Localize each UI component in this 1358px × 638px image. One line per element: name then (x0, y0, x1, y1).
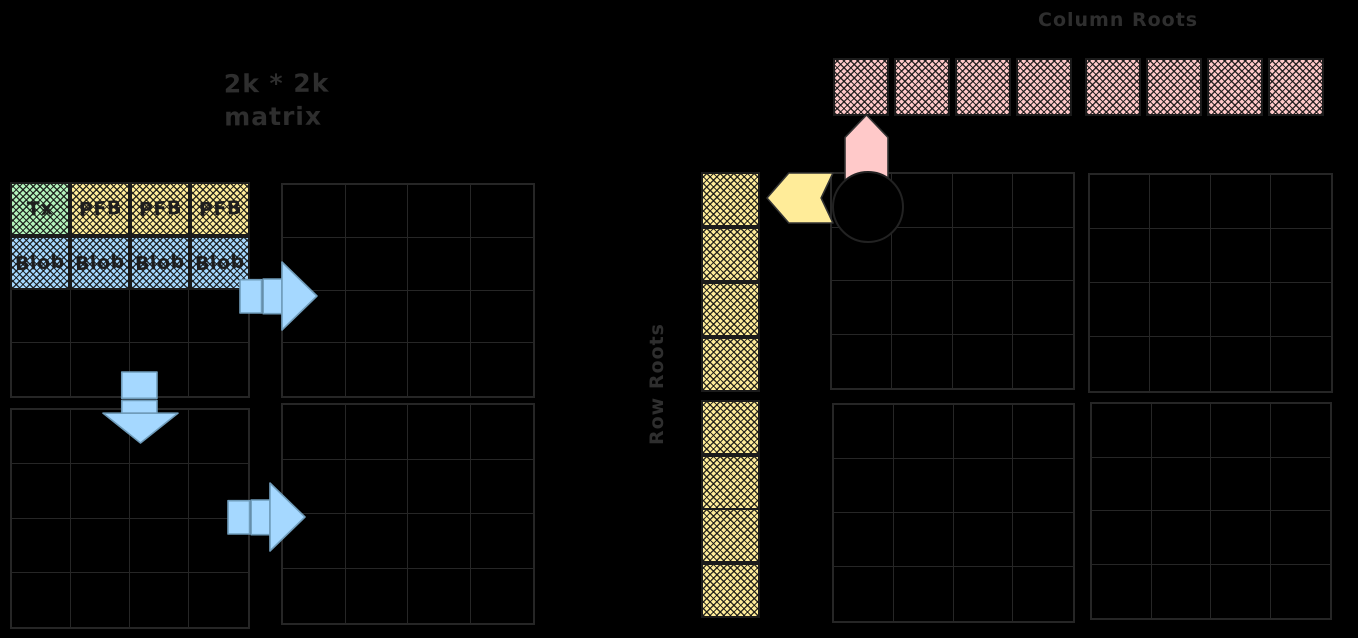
grid-cell (1090, 175, 1150, 229)
grid-cell (1092, 404, 1152, 458)
matrix-cell-label: PFB (78, 197, 122, 221)
row-root-square (701, 400, 760, 455)
grid-cell (71, 464, 130, 518)
grid-cell (283, 185, 346, 238)
matrix-cell-pfb: PFB (130, 182, 190, 236)
grid-cell (1152, 565, 1212, 619)
grid-cell (71, 290, 130, 343)
grid-cell (408, 405, 471, 460)
matrix-cell-pfb: PFB (70, 182, 130, 236)
grid-cell (12, 519, 71, 573)
yellow-arrow-left (767, 173, 833, 223)
grid-cell (954, 513, 1014, 567)
grid-cell (1150, 175, 1210, 229)
matrix-cell-label: PFB (198, 197, 242, 221)
column-root-square (833, 58, 889, 116)
matrix-cell-label: Blob (195, 251, 246, 276)
right-matrix-quadrant-4 (1090, 402, 1332, 620)
column-root-square (1146, 58, 1202, 116)
grid-cell (1092, 511, 1152, 565)
grid-cell (1211, 283, 1271, 337)
grid-cell (130, 290, 189, 343)
grid-cell (953, 281, 1013, 335)
grid-cell (346, 343, 409, 396)
grid-cell (1090, 283, 1150, 337)
grid-cell (1211, 175, 1271, 229)
matrix-cell-blob: Blob (70, 236, 130, 290)
column-root-square (1016, 58, 1072, 116)
grid-cell (346, 514, 409, 569)
grid-cell (408, 514, 471, 569)
grid-cell (1271, 283, 1331, 337)
grid-cell (471, 405, 534, 460)
grid-cell (834, 405, 894, 459)
matrix-cell-label: Tx (26, 197, 53, 220)
matrix-cell-label: PFB (138, 197, 182, 221)
column-root-square (894, 58, 950, 116)
grid-cell (1211, 337, 1271, 391)
grid-cell (408, 185, 471, 238)
grid-cell (130, 464, 189, 518)
grid-cell (283, 343, 346, 396)
grid-cell (1211, 404, 1271, 458)
grid-cell (1271, 565, 1331, 619)
grid-cell (1150, 337, 1210, 391)
matrix-cell-label: Blob (135, 251, 186, 276)
grid-cell (1271, 175, 1331, 229)
matrix-cell-blob: Blob (10, 236, 70, 290)
grid-cell (189, 573, 248, 627)
row-root-square (701, 455, 760, 510)
grid-cell (1013, 174, 1073, 228)
grid-cell (408, 460, 471, 515)
matrix-size-label: 2k * 2k matrix (224, 68, 330, 134)
grid-cell (892, 281, 952, 335)
grid-cell (130, 573, 189, 627)
left-matrix-quadrant-2 (281, 183, 535, 398)
grid-cell (12, 410, 71, 464)
left-matrix-quadrant-4 (281, 403, 535, 625)
grid-cell (71, 573, 130, 627)
flow-arrow-right-top (240, 262, 317, 330)
grid-cell (1013, 405, 1073, 459)
grid-cell (1013, 513, 1073, 567)
grid-cell (832, 335, 892, 389)
row-root-square (701, 282, 760, 337)
grid-cell (346, 185, 409, 238)
matrix-cell-tx: Tx (10, 182, 70, 236)
grid-cell (1152, 458, 1212, 512)
grid-cell (892, 228, 952, 282)
grid-cell (346, 405, 409, 460)
grid-cell (1271, 337, 1331, 391)
grid-cell (408, 569, 471, 624)
grid-cell (1090, 229, 1150, 283)
grid-cell (892, 335, 952, 389)
grid-cell (1271, 458, 1331, 512)
row-roots-label: Row Roots (645, 309, 669, 459)
grid-cell (894, 459, 954, 513)
grid-cell (832, 281, 892, 335)
column-root-square (1268, 58, 1324, 116)
grid-cell (1211, 458, 1271, 512)
column-root-square (1207, 58, 1263, 116)
grid-cell (1271, 229, 1331, 283)
grid-cell (471, 291, 534, 344)
grid-cell (1211, 511, 1271, 565)
grid-cell (12, 573, 71, 627)
grid-cell (834, 567, 894, 621)
column-roots-label: Column Roots (1038, 8, 1198, 33)
grid-cell (1092, 565, 1152, 619)
grid-cell (1092, 458, 1152, 512)
grid-cell (71, 519, 130, 573)
grid-cell (1150, 283, 1210, 337)
grid-cell (954, 567, 1014, 621)
grid-cell (1271, 511, 1331, 565)
grid-cell (189, 343, 248, 396)
grid-cell (283, 405, 346, 460)
black-dot (832, 171, 904, 243)
row-root-square (701, 508, 760, 563)
grid-cell (953, 174, 1013, 228)
matrix-cell-label: Blob (75, 251, 126, 276)
grid-cell (1013, 459, 1073, 513)
grid-cell (834, 513, 894, 567)
grid-cell (953, 228, 1013, 282)
flow-arrow-right-bottom (228, 483, 305, 551)
matrix-cell-label: Blob (15, 251, 66, 276)
flow-arrow-down (103, 372, 178, 443)
grid-cell (471, 185, 534, 238)
grid-cell (1013, 567, 1073, 621)
grid-cell (471, 569, 534, 624)
matrix-size-line1: 2k * 2k (224, 68, 330, 101)
grid-cell (130, 519, 189, 573)
grid-cell (1211, 565, 1271, 619)
grid-cell (283, 569, 346, 624)
right-matrix-quadrant-2 (1088, 173, 1333, 393)
grid-cell (471, 514, 534, 569)
grid-cell (346, 569, 409, 624)
grid-cell (408, 238, 471, 291)
right-matrix-quadrant-3 (832, 403, 1075, 623)
grid-cell (12, 343, 71, 396)
row-root-square (701, 172, 760, 227)
grid-cell (408, 291, 471, 344)
grid-cell (12, 464, 71, 518)
grid-cell (834, 459, 894, 513)
grid-cell (1152, 404, 1212, 458)
column-root-square (955, 58, 1011, 116)
grid-cell (1013, 228, 1073, 282)
grid-cell (471, 460, 534, 515)
grid-cell (12, 290, 71, 343)
matrix-cell-pfb: PFB (190, 182, 250, 236)
column-root-square (1085, 58, 1141, 116)
grid-cell (954, 405, 1014, 459)
grid-cell (346, 291, 409, 344)
grid-cell (1152, 511, 1212, 565)
grid-cell (346, 238, 409, 291)
grid-cell (894, 513, 954, 567)
row-root-square (701, 337, 760, 392)
grid-cell (894, 405, 954, 459)
grid-cell (1150, 229, 1210, 283)
grid-cell (346, 460, 409, 515)
grid-cell (1013, 281, 1073, 335)
grid-cell (953, 335, 1013, 389)
row-root-square (701, 563, 760, 618)
grid-cell (894, 567, 954, 621)
grid-cell (1090, 337, 1150, 391)
grid-cell (954, 459, 1014, 513)
matrix-size-line2: matrix (224, 100, 330, 133)
diagram-canvas: 2k * 2k matrix Column Roots Row Roots Tx… (0, 0, 1358, 638)
row-root-square (701, 227, 760, 282)
grid-cell (471, 343, 534, 396)
grid-cell (189, 410, 248, 464)
matrix-cell-blob: Blob (130, 236, 190, 290)
grid-cell (1013, 335, 1073, 389)
grid-cell (1211, 229, 1271, 283)
grid-cell (471, 238, 534, 291)
grid-cell (1271, 404, 1331, 458)
grid-cell (408, 343, 471, 396)
